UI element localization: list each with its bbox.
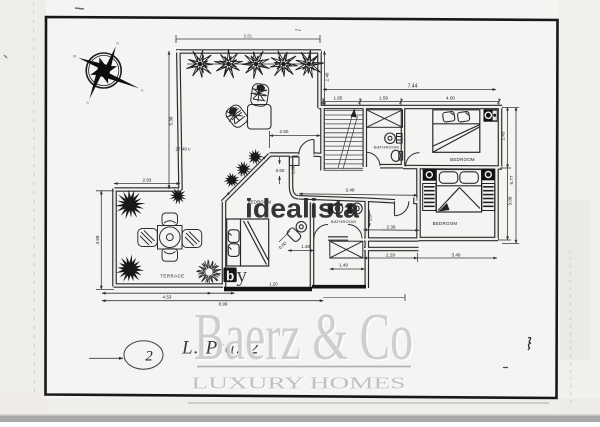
svg-text:BEDROOM: BEDROOM [450, 157, 475, 162]
svg-text:2.29: 2.29 [386, 252, 395, 257]
svg-text:1.50: 1.50 [291, 165, 296, 174]
svg-text:3.48: 3.48 [346, 188, 355, 193]
svg-text:1.07: 1.07 [368, 212, 373, 221]
svg-text:LUXURY HOMES: LUXURY HOMES [192, 374, 406, 393]
svg-text:5.38: 5.38 [169, 116, 174, 125]
svg-text:1.65: 1.65 [334, 96, 343, 101]
svg-text:b: b [226, 268, 234, 283]
svg-text:3.40: 3.40 [452, 252, 461, 257]
svg-text:2.43: 2.43 [501, 131, 506, 140]
svg-text:2.40: 2.40 [325, 72, 330, 81]
svg-text:2.39: 2.39 [387, 224, 396, 229]
svg-text:W: W [73, 54, 77, 58]
svg-text:2.93: 2.93 [143, 178, 152, 183]
svg-text:4.53: 4.53 [163, 294, 172, 299]
svg-text:y: y [237, 263, 248, 287]
svg-text:1.59: 1.59 [379, 96, 388, 101]
svg-text:BEDROOM: BEDROOM [433, 221, 458, 226]
svg-text:4.58: 4.58 [95, 235, 100, 244]
svg-text:1.20: 1.20 [269, 282, 278, 287]
svg-text:5.81: 5.81 [244, 34, 253, 39]
svg-text:N: N [116, 41, 119, 45]
svg-text:3.08: 3.08 [508, 196, 513, 205]
svg-text:27.40 c: 27.40 c [175, 147, 191, 152]
svg-text:2.50: 2.50 [280, 129, 289, 134]
svg-text:4.00: 4.00 [446, 96, 455, 101]
svg-text:1.49: 1.49 [339, 263, 348, 268]
svg-text:5.77: 5.77 [509, 175, 514, 184]
svg-text:BATHROOM: BATHROOM [374, 144, 399, 149]
svg-text:idealista: idealista [245, 194, 359, 224]
svg-text:TERRACE: TERRACE [160, 274, 184, 279]
svg-text:0.60: 0.60 [276, 168, 285, 173]
svg-text:Baerz & Co: Baerz & Co [194, 300, 413, 374]
svg-text:1.48: 1.48 [301, 244, 310, 249]
svg-text:2: 2 [145, 349, 153, 365]
svg-text:7.44: 7.44 [408, 84, 418, 90]
